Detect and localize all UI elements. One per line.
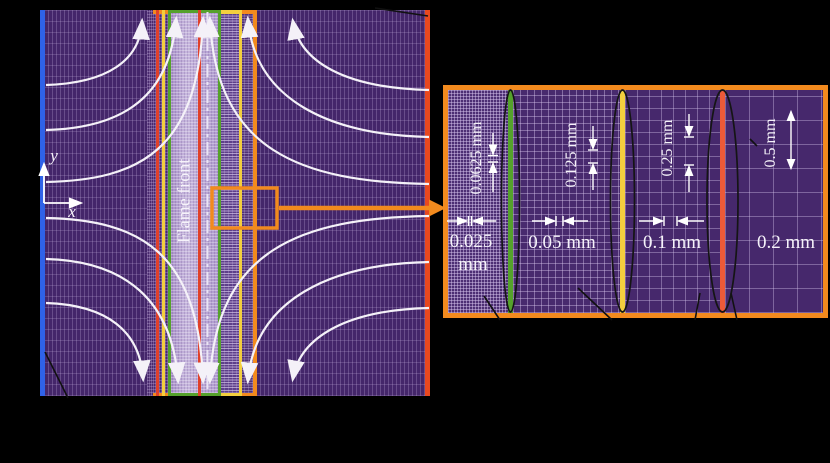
inlet-boundary-blue-line [40,10,45,396]
refine-line-red-left [156,10,159,396]
refine-line-red-center [198,10,201,396]
flame-front-label: Flame front [174,159,195,243]
region4-cell-width-label: 0.2 mm [757,232,815,254]
refine-line-orange-right [253,10,257,396]
region4-cell-height-label: 0.5 mm [762,119,780,168]
x-axis-label: x [68,202,76,222]
region1-cell-height-label: 0.0625 mm [468,122,486,195]
flame-simulation-figure: Flame front y x 0.0625 mm 0.125 mm 0.25 … [0,0,830,463]
y-axis-label: y [50,146,58,166]
outlet-boundary-red-line [425,10,430,396]
refine-line-yellow-left [162,10,165,396]
region2-cell-height-label: 0.125 mm [563,123,581,188]
region1-cell-width-label: 0.025 [450,231,493,253]
refined-band-right-outer [240,10,253,396]
region2-cell-width-label: 0.05 mm [528,232,596,254]
refined-band-right-inner [220,10,240,396]
refine-line-yellow-right [239,10,242,396]
region3-cell-width-label: 0.1 mm [643,232,701,254]
region1-cell-width-unit: mm [458,254,488,276]
region3-cell-height-label: 0.25 mm [659,120,677,177]
